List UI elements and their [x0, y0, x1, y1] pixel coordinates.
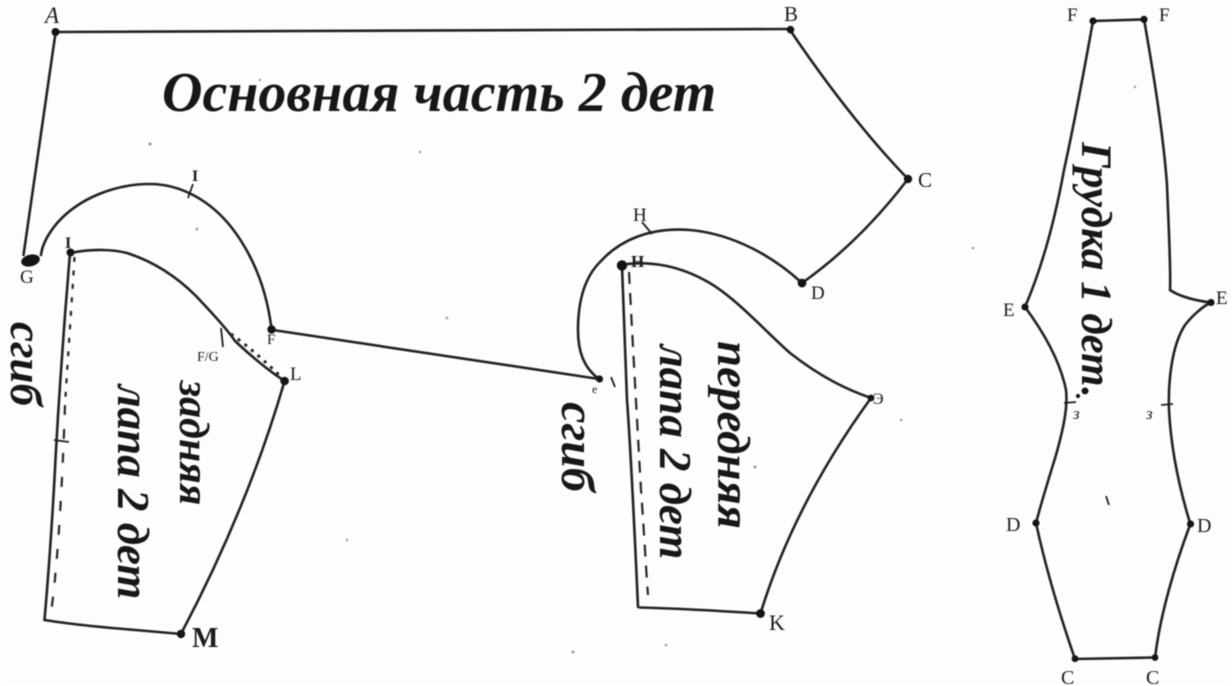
- svg-text:E: E: [1216, 288, 1228, 309]
- svg-text:Грудка 1 дет.: Грудка 1 дет.: [1072, 141, 1119, 398]
- svg-text:лапа 2 дет: лапа 2 дет: [650, 343, 700, 560]
- svg-text:M: M: [192, 623, 218, 654]
- svg-text:з: з: [1072, 404, 1080, 423]
- svg-text:F: F: [1067, 5, 1078, 26]
- svg-text:E: E: [1003, 300, 1015, 321]
- svg-text:A: A: [43, 3, 60, 28]
- svg-text:D: D: [811, 283, 825, 304]
- svg-text:передняя: передняя: [707, 341, 759, 529]
- svg-text:F: F: [267, 332, 275, 348]
- svg-text:F: F: [1159, 5, 1170, 26]
- svg-text:сгиб: сгиб: [1, 322, 51, 408]
- svg-text:H: H: [631, 252, 644, 271]
- svg-text:сгиб: сгиб: [551, 402, 604, 494]
- svg-text:B: B: [784, 2, 798, 26]
- svg-text:e: e: [592, 382, 597, 396]
- svg-text:лапа 2 дет: лапа 2 дет: [108, 383, 158, 600]
- svg-text:Основная часть 2 дет: Основная часть 2 дет: [162, 62, 716, 124]
- svg-text:D: D: [1006, 514, 1020, 536]
- svg-text:G: G: [20, 267, 34, 288]
- svg-text:з: з: [1145, 404, 1153, 423]
- svg-text:C: C: [1061, 667, 1074, 686]
- svg-text:F/G: F/G: [197, 350, 219, 365]
- svg-text:Э: Э: [873, 391, 884, 408]
- svg-text:L: L: [290, 364, 302, 385]
- svg-text:K: K: [769, 610, 785, 635]
- svg-text:D: D: [1197, 515, 1211, 537]
- svg-text:задняя: задняя: [170, 380, 216, 506]
- svg-text:H: H: [633, 205, 647, 226]
- svg-text:I: I: [192, 168, 198, 185]
- svg-text:I: I: [65, 235, 71, 252]
- svg-text:C: C: [1146, 667, 1159, 686]
- svg-text:C: C: [918, 168, 932, 192]
